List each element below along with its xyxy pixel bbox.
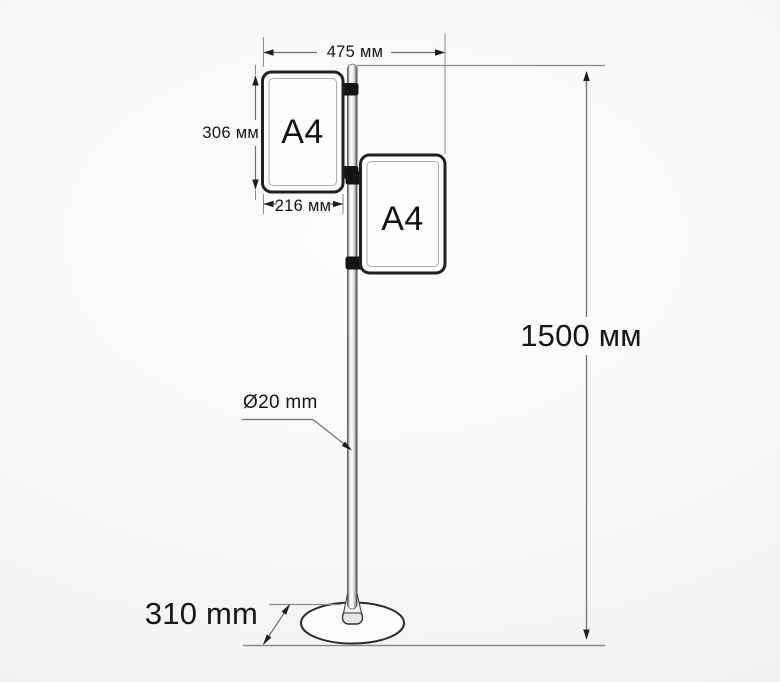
pole [348,64,358,609]
dim-label-pole-diameter: Ø20 mm [243,393,333,414]
dim-label-stand-height: 1500 мм [501,319,661,353]
dimension-drawing: A4 A4 475 мм 306 мм 216 мм 1500 мм Ø20 m… [0,0,780,682]
dim-label-overall-width: 475 мм [305,43,405,61]
dim-label-frame-width: 216 мм [253,197,353,215]
arrowhead [435,49,445,56]
arrowhead [264,49,274,56]
drawing-linework [0,0,780,682]
frame-right-size-label: A4 [360,160,445,278]
dim-label-base-diameter: 310 mm [105,597,258,631]
arrowhead [583,630,590,640]
arrowhead [583,71,590,81]
arrowhead [252,76,259,86]
frame-left-size-label: A4 [262,72,343,192]
arrowhead [252,180,259,190]
arrowhead [263,634,271,645]
dim-label-frame-height: 306 мм [175,124,259,142]
arrowhead [282,604,290,615]
